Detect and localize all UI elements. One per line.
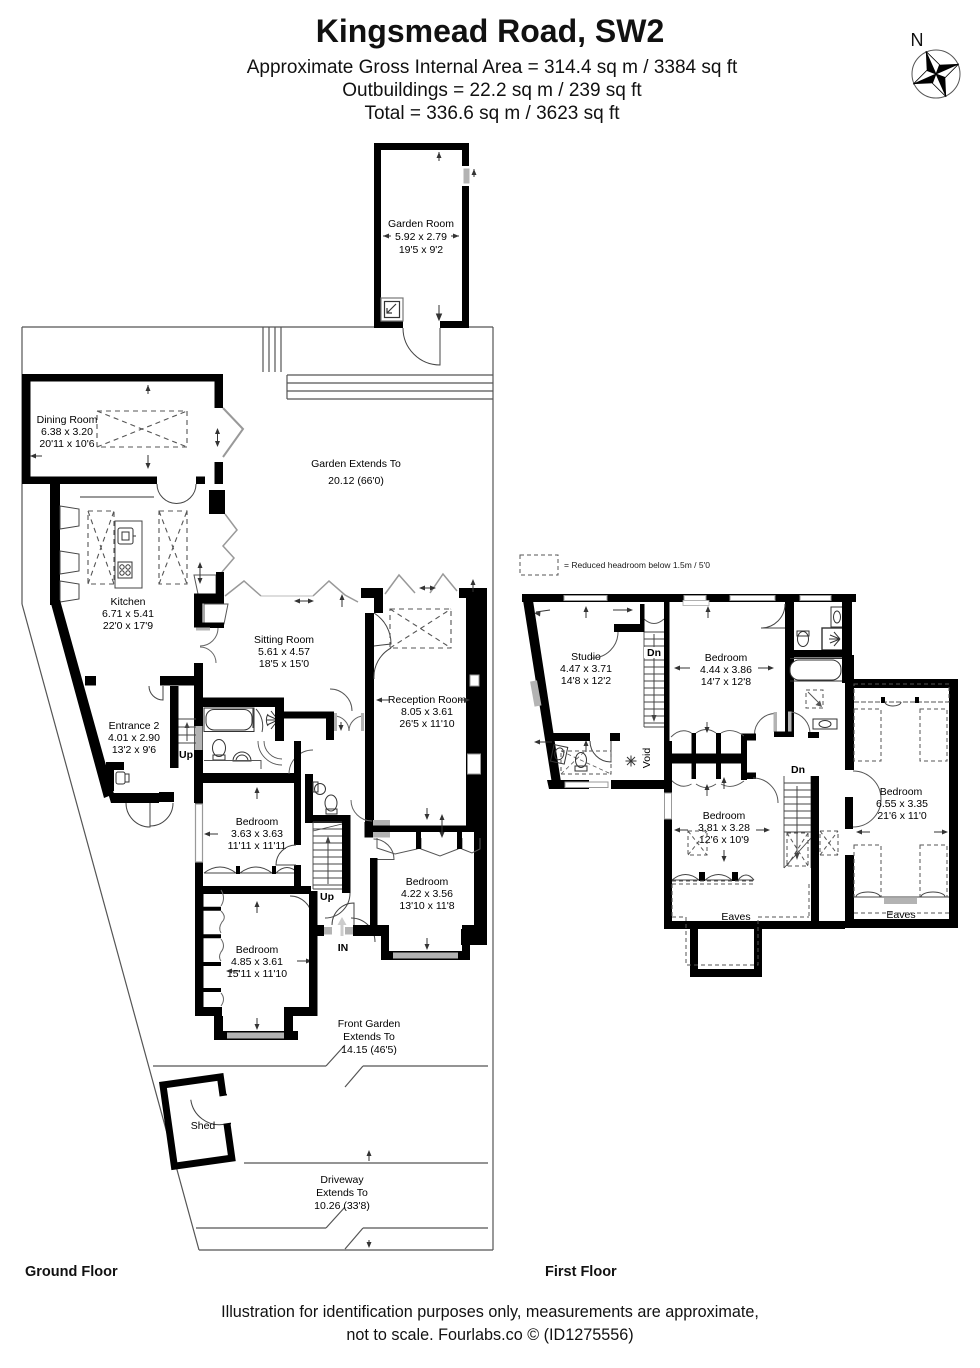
svg-text:Kitchen: Kitchen — [110, 596, 145, 608]
svg-text:11'11 x 11'11: 11'11 x 11'11 — [228, 840, 287, 852]
svg-text:= Reduced headroom below 1.5m: = Reduced headroom below 1.5m / 5'0 — [564, 560, 710, 570]
svg-text:Outbuildings = 22.2 sq m / 239: Outbuildings = 22.2 sq m / 239 sq ft — [342, 80, 642, 101]
svg-text:6.71 x 5.41: 6.71 x 5.41 — [102, 608, 154, 620]
svg-text:18'5 x 15'0: 18'5 x 15'0 — [259, 658, 309, 670]
svg-text:Void: Void — [641, 748, 653, 769]
svg-text:Shed: Shed — [191, 1120, 216, 1132]
svg-text:14'8 x 12'2: 14'8 x 12'2 — [561, 675, 611, 687]
svg-text:20'11 x 10'6: 20'11 x 10'6 — [39, 438, 94, 450]
svg-text:Total = 336.6 sq m / 3623 sq f: Total = 336.6 sq m / 3623 sq ft — [364, 103, 620, 124]
svg-text:4.01 x 2.90: 4.01 x 2.90 — [108, 732, 160, 744]
svg-text:First Floor: First Floor — [545, 1264, 617, 1280]
svg-text:Bedroom: Bedroom — [703, 810, 746, 822]
svg-text:19'5 x 9'2: 19'5 x 9'2 — [399, 244, 443, 256]
svg-text:Up: Up — [179, 749, 193, 761]
svg-text:Eaves: Eaves — [886, 909, 915, 921]
svg-text:Bedroom: Bedroom — [880, 786, 923, 798]
svg-text:5.61 x 4.57: 5.61 x 4.57 — [258, 646, 310, 658]
svg-text:4.22 x 3.56: 4.22 x 3.56 — [401, 888, 453, 900]
svg-text:Bedroom: Bedroom — [236, 816, 279, 828]
svg-text:6.38 x 3.20: 6.38 x 3.20 — [41, 426, 93, 438]
svg-text:Illustration for identificatio: Illustration for identification purposes… — [221, 1303, 759, 1321]
svg-text:N: N — [911, 30, 924, 50]
svg-text:14.15 (46'5): 14.15 (46'5) — [341, 1044, 397, 1056]
svg-text:Up: Up — [320, 891, 334, 903]
svg-text:5.92 x 2.79: 5.92 x 2.79 — [395, 231, 447, 243]
svg-text:15'11 x 11'10: 15'11 x 11'10 — [227, 968, 287, 980]
svg-text:Dn: Dn — [791, 764, 805, 776]
svg-text:Kingsmead Road, SW2: Kingsmead Road, SW2 — [316, 13, 665, 49]
svg-text:Studio: Studio — [571, 651, 601, 663]
svg-text:Extends To: Extends To — [316, 1187, 368, 1199]
svg-text:Eaves: Eaves — [721, 911, 750, 923]
svg-text:Dn: Dn — [647, 647, 661, 659]
svg-text:14'7 x 12'8: 14'7 x 12'8 — [701, 676, 751, 688]
svg-text:22'0 x 17'9: 22'0 x 17'9 — [103, 620, 153, 632]
svg-text:8.05 x 3.61: 8.05 x 3.61 — [401, 706, 453, 718]
svg-text:Dining Room: Dining Room — [37, 414, 98, 426]
svg-text:13'2 x 9'6: 13'2 x 9'6 — [112, 744, 156, 756]
svg-text:Entrance 2: Entrance 2 — [109, 720, 160, 732]
svg-text:Front Garden: Front Garden — [338, 1018, 401, 1030]
svg-text:3.63 x 3.63: 3.63 x 3.63 — [231, 828, 283, 840]
svg-text:Sitting Room: Sitting Room — [254, 634, 314, 646]
svg-text:Bedroom: Bedroom — [406, 876, 449, 888]
svg-text:Driveway: Driveway — [320, 1174, 364, 1186]
svg-text:Garden Extends To: Garden Extends To — [311, 458, 401, 470]
svg-text:6.55 x 3.35: 6.55 x 3.35 — [876, 798, 928, 810]
svg-text:Reception Room: Reception Room — [388, 694, 466, 706]
svg-text:Extends To: Extends To — [343, 1031, 395, 1043]
svg-text:4.47 x 3.71: 4.47 x 3.71 — [560, 663, 612, 675]
svg-text:20.12 (66'0): 20.12 (66'0) — [328, 475, 384, 487]
svg-text:IN: IN — [338, 942, 349, 954]
svg-text:21'6 x 11'0: 21'6 x 11'0 — [877, 810, 927, 822]
svg-text:12'6 x 10'9: 12'6 x 10'9 — [699, 834, 749, 846]
svg-text:13'10 x 11'8: 13'10 x 11'8 — [399, 900, 454, 912]
svg-text:26'5 x 11'10: 26'5 x 11'10 — [399, 718, 454, 730]
svg-text:Ground Floor: Ground Floor — [25, 1264, 118, 1280]
svg-text:4.44 x 3.86: 4.44 x 3.86 — [700, 664, 752, 676]
svg-text:not to scale. Fourlabs.co © (I: not to scale. Fourlabs.co © (ID1275556) — [346, 1326, 633, 1344]
svg-text:Bedroom: Bedroom — [236, 944, 279, 956]
svg-text:Bedroom: Bedroom — [705, 652, 748, 664]
svg-text:Garden Room: Garden Room — [388, 218, 454, 230]
svg-text:4.85 x 3.61: 4.85 x 3.61 — [231, 956, 283, 968]
svg-text:Approximate Gross Internal Are: Approximate Gross Internal Area = 314.4 … — [247, 57, 738, 78]
svg-text:10.26 (33'8): 10.26 (33'8) — [314, 1200, 370, 1212]
